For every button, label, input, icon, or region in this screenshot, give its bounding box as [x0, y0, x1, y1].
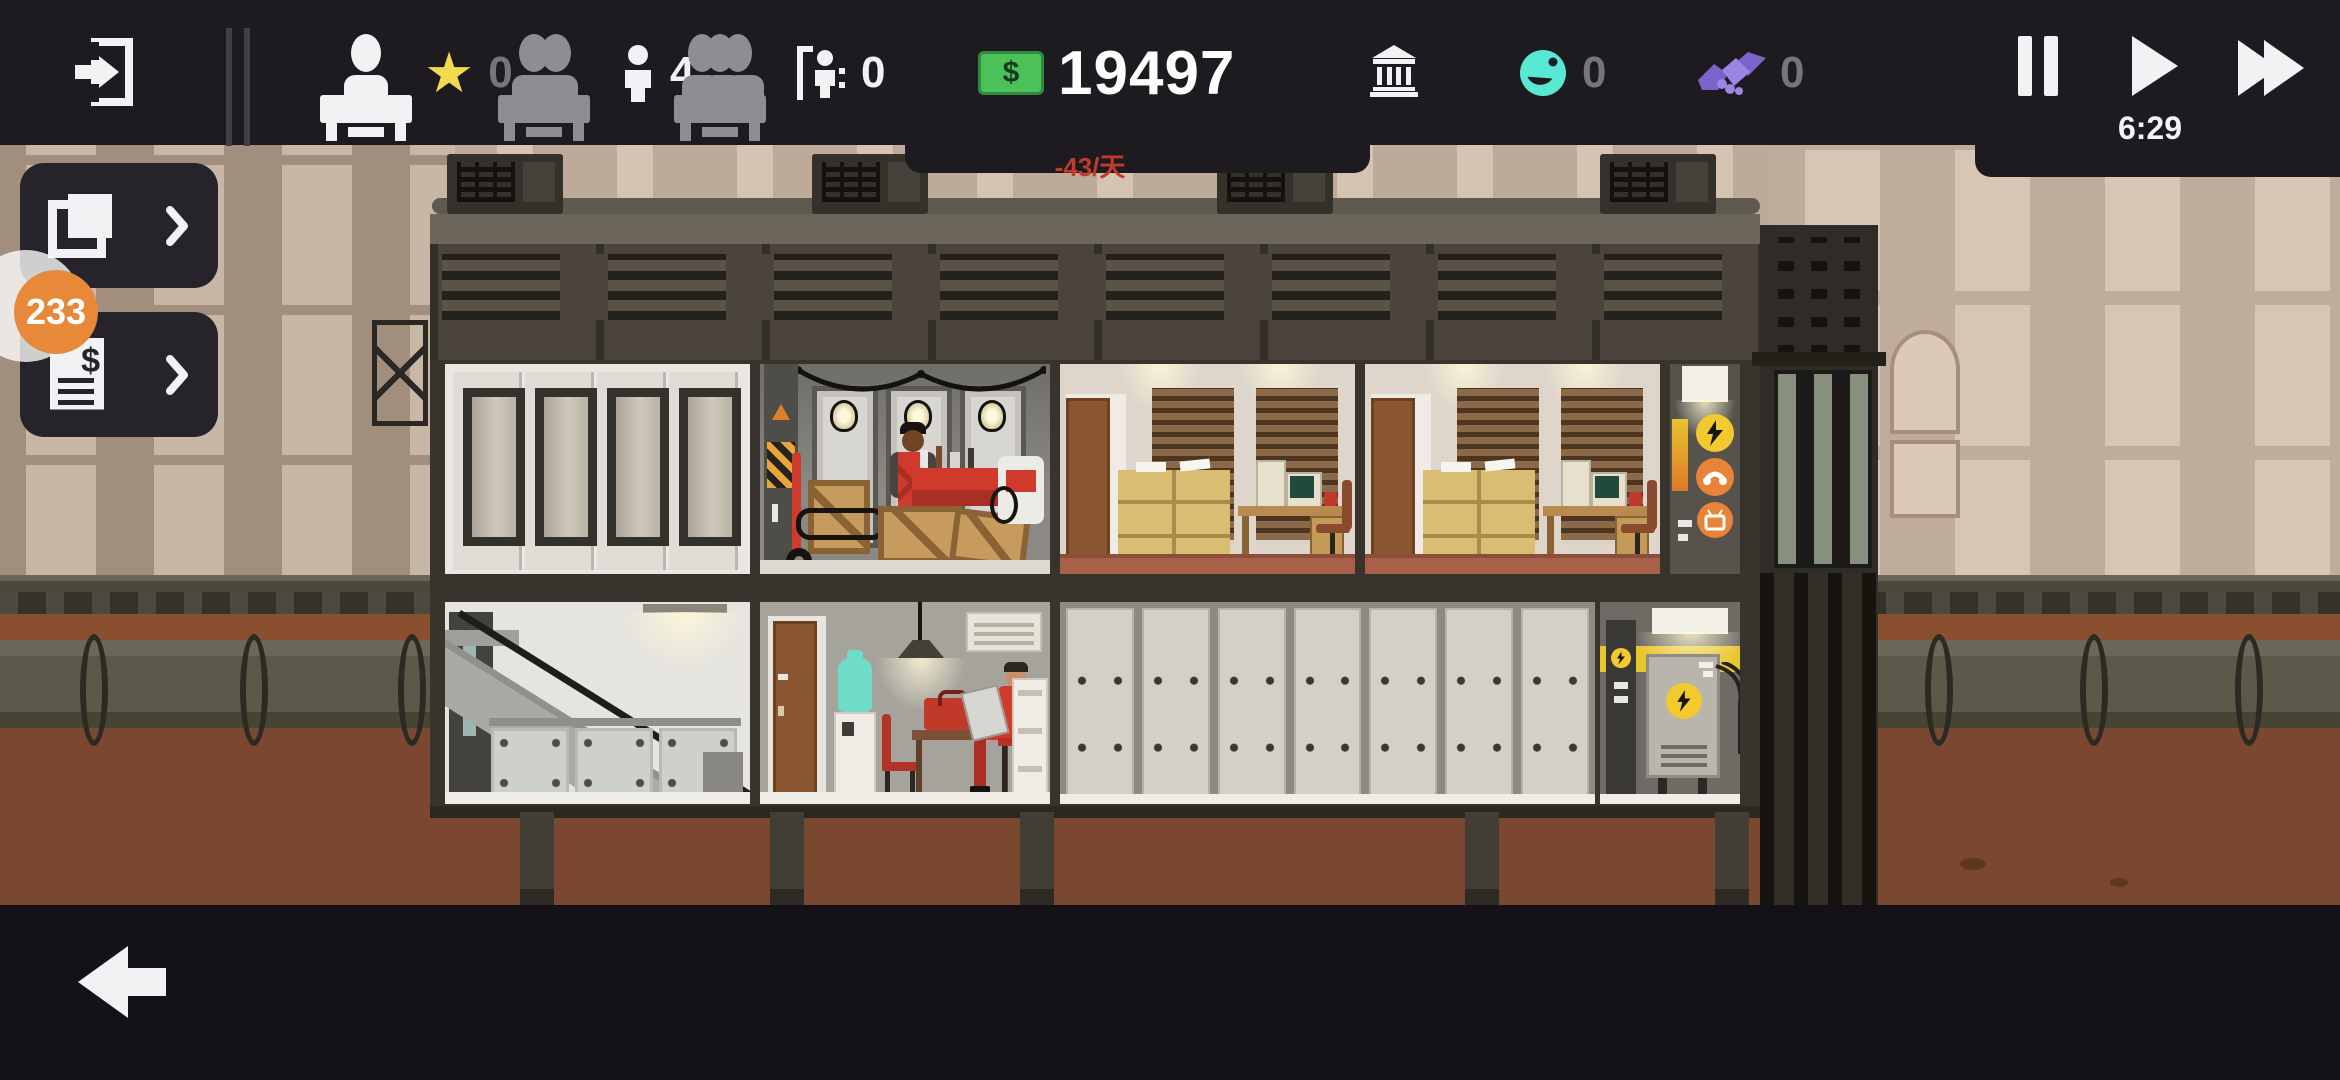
money-stat[interactable]: $ 19497 [978, 30, 1235, 116]
pipe-ring [2080, 634, 2108, 746]
tv-icon [1697, 502, 1733, 538]
currency-symbol: $ [1003, 56, 1020, 90]
shop-machine [998, 456, 1044, 524]
office-floor [1365, 554, 1660, 574]
badge-count: 233 [26, 291, 86, 333]
pipe-ring [398, 634, 426, 746]
door-handle [772, 504, 778, 522]
rooftop-ac-unit [1600, 154, 1716, 214]
water-cooler [834, 658, 878, 804]
glass-door [597, 372, 666, 570]
chevron-right-icon [164, 206, 190, 246]
cash-icon: $ [978, 51, 1044, 95]
handshake-icon [1698, 50, 1766, 96]
floor [445, 792, 750, 804]
notification-badge[interactable]: 233 [14, 270, 98, 354]
pendant-shade [898, 640, 944, 658]
wall-vent [966, 612, 1042, 652]
phone-icon [1696, 458, 1734, 496]
topbar-right-extension [1975, 145, 2340, 177]
office-door [1371, 394, 1431, 558]
ac-panel [1676, 162, 1708, 202]
tower-slat-windows [1774, 370, 1872, 568]
happiness-stat[interactable]: 0 [1518, 38, 1606, 108]
modular-wall-panel [1294, 608, 1362, 798]
support-pillar [770, 812, 804, 907]
star-icon: ★ [424, 45, 474, 101]
contracts-stat[interactable]: 0 [1698, 38, 1804, 108]
ceiling-light-glow [623, 612, 747, 668]
fast-forward-icon [2264, 40, 2304, 96]
building-base [430, 806, 1760, 818]
person-icon [620, 44, 656, 102]
modular-wall-panel [1066, 608, 1134, 798]
pipe-ring [80, 634, 108, 746]
dirt-spot [2110, 878, 2128, 887]
fluorescent-lamp [1652, 608, 1728, 634]
ac-grill [457, 162, 515, 202]
support-pillar [1020, 812, 1054, 907]
desk-2-people-icon [488, 29, 600, 147]
ac-grill [822, 162, 880, 202]
rooftop-ac-unit [447, 154, 563, 214]
room-workshop[interactable] [760, 364, 1050, 574]
office-size-1-button[interactable] [306, 20, 426, 155]
pipe-ring [1925, 634, 1953, 746]
hand-truck [784, 452, 874, 564]
water-tower-frame [372, 320, 428, 426]
visitors-stat[interactable]: 0 [795, 38, 885, 108]
bank-button[interactable] [1368, 42, 1420, 103]
paper-stack [1441, 462, 1471, 472]
drawer-cabinet [1012, 678, 1048, 804]
cage-lamp-icon [978, 400, 1006, 432]
glass-pane [463, 388, 525, 546]
break-room-door [768, 616, 826, 802]
pause-icon [2018, 36, 2032, 96]
cage-lamp-icon [830, 400, 858, 432]
game-screen: ★ 0 4 0 $ 19497 -43/天 [0, 0, 2340, 1080]
bank-icon [1368, 42, 1420, 98]
glass-pane [535, 388, 597, 546]
room-unfinished-modular[interactable] [1060, 602, 1595, 804]
window [1890, 440, 1960, 518]
office-door [1066, 394, 1126, 558]
office-size-2-button[interactable] [484, 20, 604, 155]
office-floor [1060, 554, 1355, 574]
tower-vent-grid [1778, 237, 1860, 355]
contracts-value: 0 [1780, 48, 1804, 98]
support-pillar [1715, 812, 1749, 907]
warning-triangle-icon [772, 404, 790, 420]
door-hardware [1678, 520, 1692, 527]
utility-shaft[interactable] [1670, 364, 1740, 574]
modular-wall-panel [1445, 608, 1513, 798]
room-office-1[interactable] [1060, 364, 1355, 574]
exit-button[interactable] [75, 36, 137, 113]
blueprints-icon [48, 194, 112, 258]
room-office-2[interactable] [1365, 364, 1660, 574]
pipe-ring [240, 634, 268, 746]
tower-ledge [1752, 352, 1886, 366]
pipe-ring [2235, 634, 2263, 746]
pause-icon [2044, 36, 2058, 96]
room-glass-lobby[interactable] [445, 364, 750, 574]
chevron-right-icon [164, 355, 190, 395]
tower-fins [1760, 573, 1878, 905]
dirt-spot [1960, 858, 1986, 870]
money-value: 19497 [1058, 38, 1235, 109]
happiness-value: 0 [1582, 48, 1606, 98]
toolbar-divider [226, 28, 250, 146]
breaker-panel [1646, 654, 1720, 778]
power-icon [1696, 414, 1734, 452]
louver-slats [442, 254, 1748, 320]
door-hardware [1678, 534, 1688, 541]
exit-door-icon [75, 36, 137, 108]
conduit-column [1606, 620, 1636, 800]
support-pillar [520, 812, 554, 907]
ac-grill [1610, 162, 1668, 202]
visitors-value: 0 [861, 48, 885, 98]
back-button[interactable] [70, 938, 170, 1033]
modular-wall-panel [1369, 608, 1437, 798]
desk-3-people-icon [664, 29, 776, 147]
pause-button[interactable] [2018, 36, 2058, 96]
glass-pane [607, 388, 669, 546]
floor [760, 792, 1050, 804]
fast-forward-button[interactable] [2238, 40, 2304, 96]
shaft-lamp [1682, 366, 1728, 402]
roof-duct [432, 198, 1760, 214]
modular-wall-panel [1142, 608, 1210, 798]
room-stairwell[interactable] [445, 602, 750, 804]
bottom-toolbar [0, 905, 2340, 1080]
service-tower [1760, 225, 1878, 905]
ac-panel [523, 162, 555, 202]
desk-1-person-icon [310, 29, 422, 147]
underground-pipe-left [0, 640, 445, 728]
person-at-door-icon [795, 44, 847, 102]
arched-window [1890, 330, 1960, 434]
glass-door [453, 372, 522, 570]
modular-wall-panel [1521, 608, 1589, 798]
workshop-floor [760, 560, 1050, 574]
play-button[interactable] [2132, 36, 2178, 96]
modular-wall-panel [1218, 608, 1286, 798]
smiley-globe-icon [1518, 48, 1568, 98]
play-icon [2132, 36, 2178, 96]
glass-door [669, 372, 738, 570]
cables [1714, 662, 1740, 758]
room-break-room[interactable] [760, 602, 1050, 804]
glass-door [525, 372, 594, 570]
paper-stack [1136, 462, 1166, 472]
pendant-cord [918, 602, 922, 642]
glass-pane [679, 388, 741, 546]
money-per-day: -43/天 [985, 147, 1195, 184]
back-arrow-icon [70, 938, 170, 1028]
utility-gauge-bar [1672, 419, 1688, 491]
floor [1060, 794, 1595, 804]
floor [1600, 794, 1740, 804]
support-pillar [1465, 812, 1499, 907]
roof-louver-band [430, 244, 1760, 362]
office-size-3-button[interactable] [660, 20, 780, 155]
game-clock: 6:29 [2060, 110, 2240, 147]
room-electrical[interactable] [1600, 602, 1740, 804]
